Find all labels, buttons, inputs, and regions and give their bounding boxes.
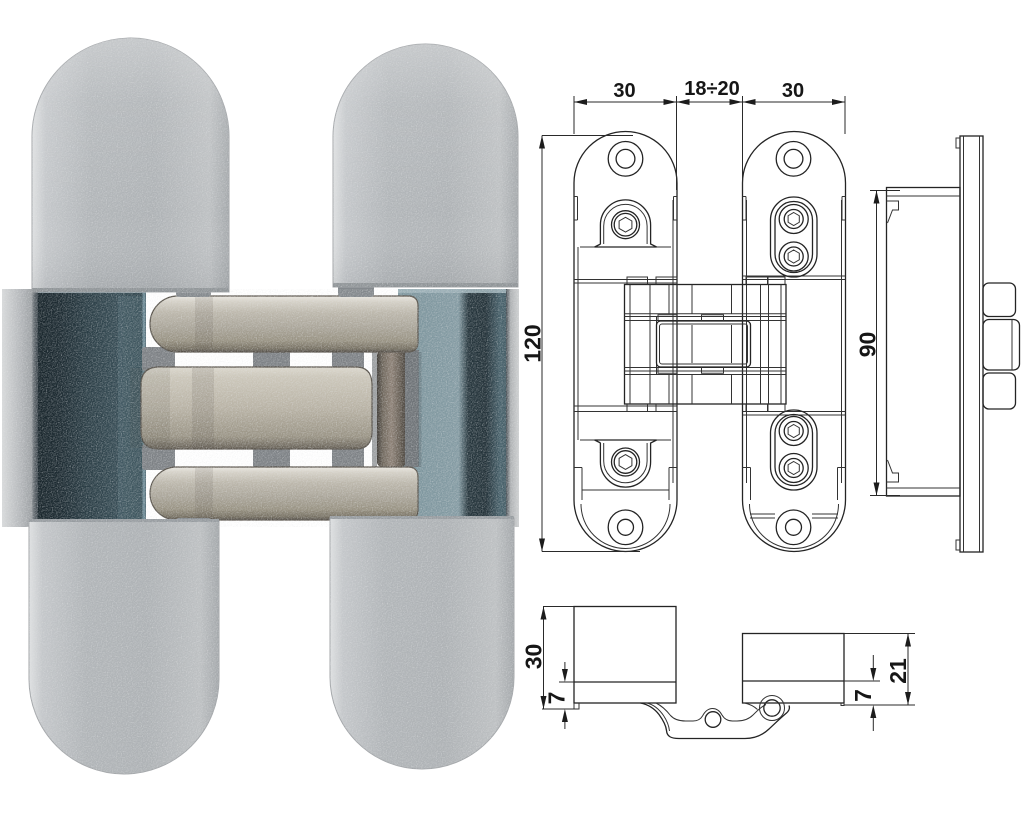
svg-text:90: 90	[855, 332, 881, 358]
svg-text:30: 30	[782, 80, 804, 102]
svg-text:18÷20: 18÷20	[684, 78, 739, 100]
svg-text:120: 120	[520, 324, 546, 362]
svg-text:21: 21	[885, 658, 911, 684]
svg-text:7: 7	[850, 689, 876, 702]
svg-text:7: 7	[544, 692, 570, 705]
svg-text:30: 30	[521, 644, 547, 670]
svg-text:30: 30	[613, 80, 635, 102]
